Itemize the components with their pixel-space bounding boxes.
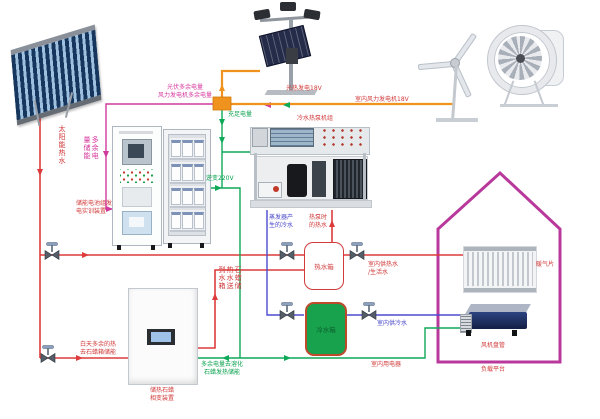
battery [194,188,204,205]
bench-leg [254,153,257,207]
heat-pump-bench [248,124,372,212]
battery-cabinet [163,129,211,244]
battery-shelf [170,162,205,184]
battery [171,164,181,181]
fan-coil-foot [512,330,517,336]
battery [194,140,204,157]
paraffin-device-label-line2: 相变装置 [140,395,184,403]
radiator-fins [467,252,533,286]
ducted-fan-wind-source [486,12,570,110]
hp-buttons [320,127,364,147]
radiator-rail [464,288,536,292]
hot-water-tank-label: 热水箱 [314,261,334,271]
solar-hot-water-label: 太阳能热水 [58,125,66,165]
paraffin-display [151,332,171,342]
fan-coil-foot [466,330,471,336]
battery-shelf [170,186,205,208]
radiator [463,246,537,293]
melt-paraffin-label-line2: 石蜡发热储能 [196,369,248,377]
indoor-hot-water-label-line2: /生活水 [368,269,388,277]
indicator-lights [120,169,154,183]
battery-rack [168,134,206,236]
indoor-cold-water-label: 室内供冷水 [377,320,407,328]
battery [194,164,204,181]
heat-pump-title: 冷水热泵机组 [297,115,333,123]
radiator-label: 暖气片 [536,261,554,269]
battery [182,164,192,181]
battery [182,140,192,157]
storage-device-label-line1: 储能电池组发 [76,200,112,208]
chilled-water-pipes [267,210,462,315]
finned-condenser [333,159,367,199]
cabinet-foot [151,245,155,250]
bench-shelf [250,200,372,208]
pv-panel [259,25,311,67]
compressor [287,164,307,197]
heat-exchanger [312,161,326,197]
battery [182,188,192,205]
module-window [129,217,144,227]
paraffin-device-label-line1: 储热石蜡 [140,387,184,395]
battery-shelf [170,138,205,160]
evaporator-label-line1: 蒸发器产 [269,214,293,222]
tracker-control-box [286,48,298,64]
heatpump-hot-label-line1: 热泵时 [309,214,327,222]
turbine-pole [451,66,458,120]
heatpump-hot-label-line2: 的热水 [309,222,327,230]
cabinet-panel [122,187,152,207]
fan-coil-label: 风机盘管 [481,342,505,350]
battery [171,188,181,205]
cold-water-tank: 冷水箱 [305,302,347,356]
battery [171,212,181,229]
battery [182,212,192,229]
radiator-rail [464,247,536,251]
fan-coil-body [469,312,527,329]
paraffin-to-tank-label: 石蜡储热水送到水箱 [218,266,242,297]
hot-water-tank: 热水箱 [304,242,344,290]
inverter-220v-label: 逆变220V [206,175,234,183]
cabinet-foot [168,243,172,248]
water-pump [258,182,282,198]
fan-coil-unit [460,304,532,338]
fan-stand-base [500,104,558,107]
cabinet-foot [117,245,121,250]
turbine-blade [418,61,454,70]
cabinet-vent [119,131,153,134]
wind-generation-label: 室内风力发电机18V [355,96,409,104]
melt-paraffin-label-line1: 多余电量去溶化 [196,361,248,369]
hp-component-deck [254,156,368,200]
battery-shelf [170,210,205,232]
paraffin-phase-change-device [128,288,198,385]
hp-side-module [252,128,268,147]
control-cabinet [112,126,162,246]
collector-tubes [11,24,102,125]
pv-tracker-unit [250,2,334,98]
battery [171,140,181,157]
cold-water-tank-label: 冷水箱 [316,324,336,334]
indoor-appliances-label: 室内用电器 [371,361,401,369]
battery [194,212,204,229]
cabinet-screen [122,139,152,165]
daytime-heat-label-line1: 白天多余的热 [80,341,116,349]
pump-cap [273,186,279,192]
sufficient-power-label: 充足电量 [228,111,252,119]
indoor-hot-water-label-line1: 室内供热水 [368,261,398,269]
excess-pv-wind-label-line1: 光伏多余电量 [139,84,231,92]
system-diagram: 热水箱 冷水箱 光伏多余电量 风力发电机多余电量 多余电量储能 储能电池组发 电… [0,0,600,419]
bench-leg [363,153,366,207]
cabinet-foot [200,243,204,248]
surplus-storage-label: 多余电量储能 [83,136,99,160]
storage-device-label-line2: 电实训装置 [76,208,106,216]
excess-pv-wind-label-line2: 风力发电机多余电量 [139,92,231,100]
solar-thermal-collector [6,26,110,126]
fan-hub [516,54,525,63]
pv-generation-label: 光热发电18V [286,85,322,93]
load-platform-label: 负载平台 [481,366,505,374]
turbine-base [436,118,478,122]
cabinet-lower-module [122,211,152,235]
screen-display [128,144,144,158]
hp-lcd-screen [270,128,314,147]
paraffin-screen [147,329,175,345]
lamp-icon [280,2,296,11]
evaporator-label-line2: 生的冷水 [269,222,293,230]
daytime-heat-label-line2: 去石蜡箱储能 [80,349,116,357]
